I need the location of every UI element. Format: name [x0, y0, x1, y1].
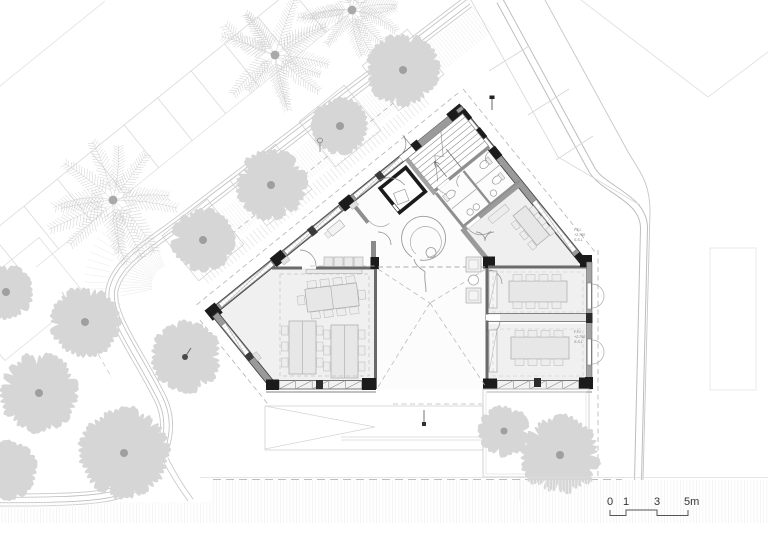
svg-text:F.F.L: F.F.L: [574, 330, 581, 334]
svg-text:+2.750: +2.750: [574, 233, 585, 237]
svg-text:F.F.L: F.F.L: [574, 228, 581, 232]
svg-text:0: 0: [607, 496, 613, 508]
svg-text:S.S.L: S.S.L: [574, 238, 583, 242]
svg-text:3: 3: [654, 496, 660, 508]
svg-text:5m: 5m: [684, 496, 699, 508]
svg-text:S.S.L: S.S.L: [574, 340, 583, 344]
svg-text:1: 1: [623, 496, 629, 508]
svg-text:+2.750: +2.750: [574, 335, 585, 339]
